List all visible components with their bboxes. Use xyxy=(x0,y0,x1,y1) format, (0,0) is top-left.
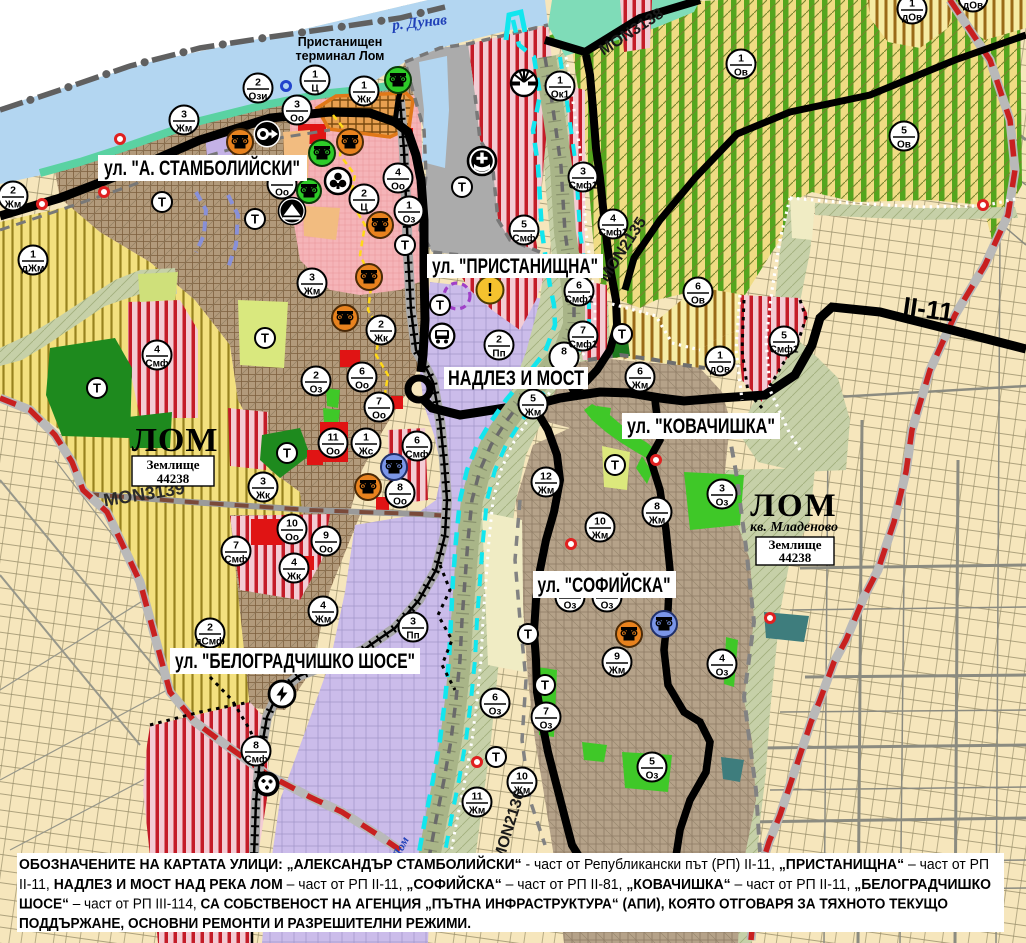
svg-text:Оо: Оо xyxy=(285,533,299,544)
svg-text:дОв: дОв xyxy=(710,365,730,376)
svg-text:2: 2 xyxy=(10,185,16,197)
svg-text:Оз: Оз xyxy=(716,668,729,679)
svg-text:44238: 44238 xyxy=(779,550,812,565)
svg-text:Ок1: Ок1 xyxy=(551,90,570,101)
svg-text:ОБОЗНАЧЕНИТЕ НА КАРТАТА УЛИЦИ:: ОБОЗНАЧЕНИТЕ НА КАРТАТА УЛИЦИ: „АЛЕКСАНД… xyxy=(19,855,989,873)
svg-text:1: 1 xyxy=(909,0,915,10)
svg-text:ул. "КОВАЧИШКА": ул. "КОВАЧИШКА" xyxy=(627,415,775,438)
svg-text:Пристанищен: Пристанищен xyxy=(298,35,383,49)
svg-text:дСмф: дСмф xyxy=(195,636,225,648)
svg-text:5: 5 xyxy=(901,125,907,137)
svg-text:Жк: Жк xyxy=(373,334,389,345)
svg-text:6: 6 xyxy=(492,692,498,704)
svg-text:ул. "СОФИЙСКА": ул. "СОФИЙСКА" xyxy=(538,573,671,597)
svg-text:Жм: Жм xyxy=(4,200,21,211)
svg-text:Ов: Ов xyxy=(897,140,911,151)
svg-text:Жм: Жм xyxy=(608,666,625,677)
svg-text:10: 10 xyxy=(516,771,528,783)
svg-text:1: 1 xyxy=(363,432,369,444)
svg-text:Т: Т xyxy=(618,327,626,342)
svg-text:11: 11 xyxy=(471,791,482,803)
svg-text:Смф1: Смф1 xyxy=(565,294,594,306)
svg-text:7: 7 xyxy=(543,706,549,718)
svg-text:дОв: дОв xyxy=(902,13,922,24)
svg-text:2: 2 xyxy=(378,319,384,331)
svg-text:Оо: Оо xyxy=(355,381,369,392)
svg-text:Оз: Оз xyxy=(403,215,416,226)
svg-text:5: 5 xyxy=(781,330,787,342)
svg-text:ПОДДЪРЖАНЕ, ОСНОВНИ РЕМОНТИ И: ПОДДЪРЖАНЕ, ОСНОВНИ РЕМОНТИ И РАЗРЕШИТЕЛ… xyxy=(19,916,471,932)
svg-text:Ц: Ц xyxy=(311,84,319,95)
svg-text:кв. Младеново: кв. Младеново xyxy=(750,520,838,535)
svg-text:8: 8 xyxy=(561,346,567,358)
svg-text:дОв: дОв xyxy=(963,1,983,12)
svg-text:Жк: Жк xyxy=(356,95,372,106)
svg-text:3: 3 xyxy=(309,272,315,284)
svg-text:2: 2 xyxy=(207,622,213,634)
svg-text:Оз: Оз xyxy=(310,385,323,396)
svg-text:6: 6 xyxy=(695,281,701,293)
svg-text:НАДЛЕЗ И МОСТ: НАДЛЕЗ И МОСТ xyxy=(448,367,584,390)
svg-text:Ов: Ов xyxy=(734,68,748,79)
svg-text:10: 10 xyxy=(286,518,298,530)
svg-text:!: ! xyxy=(487,280,493,300)
svg-text:Т: Т xyxy=(93,381,101,396)
svg-text:8: 8 xyxy=(654,501,660,513)
svg-text:6: 6 xyxy=(576,280,582,292)
svg-text:3: 3 xyxy=(719,483,725,495)
svg-text:Оз: Оз xyxy=(716,498,729,509)
svg-text:Оо: Оо xyxy=(290,114,304,125)
svg-text:10: 10 xyxy=(594,516,606,528)
svg-text:Смф: Смф xyxy=(512,233,535,245)
svg-text:Т: Т xyxy=(251,212,259,227)
svg-text:Смф1: Смф1 xyxy=(770,344,799,356)
svg-text:Т: Т xyxy=(541,678,549,693)
svg-text:Т: Т xyxy=(283,446,291,461)
svg-text:Жм: Жм xyxy=(591,531,608,542)
svg-text:6: 6 xyxy=(637,366,643,378)
svg-text:6: 6 xyxy=(359,366,365,378)
svg-text:Жм: Жм xyxy=(537,486,554,497)
svg-text:II-11, НАДЛЕЗ И МОСТ НАД РЕКА: II-11, НАДЛЕЗ И МОСТ НАД РЕКА ЛОМ – част… xyxy=(19,875,991,893)
svg-text:Ов: Ов xyxy=(691,296,705,307)
svg-text:4: 4 xyxy=(395,167,401,179)
svg-text:5: 5 xyxy=(649,756,655,768)
svg-text:Т: Т xyxy=(524,627,532,642)
svg-text:Жс: Жс xyxy=(358,447,374,458)
svg-text:11: 11 xyxy=(327,432,338,444)
svg-text:Землище: Землище xyxy=(146,457,199,472)
svg-text:Жм: Жм xyxy=(303,287,320,298)
svg-text:Т: Т xyxy=(492,750,500,765)
svg-text:Ози: Ози xyxy=(249,92,268,103)
svg-text:3: 3 xyxy=(294,99,300,111)
svg-text:Смф: Смф xyxy=(244,754,267,766)
svg-text:Смф: Смф xyxy=(145,358,168,370)
svg-text:6: 6 xyxy=(414,435,420,447)
svg-text:Оз: Оз xyxy=(646,771,659,782)
svg-text:Жм: Жм xyxy=(468,806,485,817)
svg-text:Оз: Оз xyxy=(564,601,577,612)
svg-text:8: 8 xyxy=(397,482,403,494)
svg-text:5: 5 xyxy=(521,219,527,231)
svg-text:3: 3 xyxy=(410,616,416,628)
svg-text:Т: Т xyxy=(458,180,466,195)
svg-text:9: 9 xyxy=(323,530,329,542)
svg-text:2: 2 xyxy=(496,334,502,346)
svg-text:5: 5 xyxy=(530,393,536,405)
svg-text:12: 12 xyxy=(540,471,552,483)
svg-text:3: 3 xyxy=(260,476,266,488)
svg-text:терминал Лом: терминал Лом xyxy=(296,49,385,63)
svg-text:Пп: Пп xyxy=(406,631,419,642)
svg-text:Т: Т xyxy=(611,458,619,473)
svg-text:ул. "БЕЛОГРАДЧИШКО ШОСЕ": ул. "БЕЛОГРАДЧИШКО ШОСЕ" xyxy=(175,650,415,673)
svg-text:Жм: Жм xyxy=(175,124,192,135)
svg-text:Смф: Смф xyxy=(405,449,428,461)
svg-text:дЖм: дЖм xyxy=(22,264,45,275)
svg-text:4: 4 xyxy=(610,213,616,225)
svg-text:ЛОМ: ЛОМ xyxy=(750,488,837,524)
svg-text:7: 7 xyxy=(233,540,239,552)
svg-text:Смф1: Смф1 xyxy=(569,339,598,351)
svg-text:Т: Т xyxy=(158,195,166,210)
svg-text:Оо: Оо xyxy=(275,188,289,199)
svg-text:44238: 44238 xyxy=(157,471,190,486)
svg-text:Оо: Оо xyxy=(393,497,407,508)
svg-text:1: 1 xyxy=(406,200,412,212)
svg-text:Оо: Оо xyxy=(391,182,405,193)
svg-text:Оз: Оз xyxy=(540,721,553,732)
svg-text:2: 2 xyxy=(361,188,367,200)
svg-text:Пп: Пп xyxy=(492,349,505,360)
svg-text:ул. "ПРИСТАНИЩНА": ул. "ПРИСТАНИЩНА" xyxy=(432,255,598,278)
svg-text:1: 1 xyxy=(361,80,367,92)
svg-text:8: 8 xyxy=(253,740,259,752)
svg-text:Оз: Оз xyxy=(489,707,502,718)
svg-text:Оз: Оз xyxy=(601,601,614,612)
svg-text:3: 3 xyxy=(181,109,187,121)
svg-text:Жм: Жм xyxy=(314,615,331,626)
svg-text:2: 2 xyxy=(313,370,319,382)
svg-text:Жм: Жм xyxy=(524,408,541,419)
svg-text:4: 4 xyxy=(719,653,725,665)
svg-text:ЛОМ: ЛОМ xyxy=(132,422,219,459)
svg-text:Т: Т xyxy=(436,298,444,313)
svg-text:Т: Т xyxy=(401,238,409,253)
svg-text:Смф1: Смф1 xyxy=(569,180,598,192)
svg-text:1: 1 xyxy=(30,249,36,261)
svg-text:9: 9 xyxy=(614,651,620,663)
svg-text:1: 1 xyxy=(557,75,563,87)
svg-text:Ц: Ц xyxy=(360,203,368,214)
svg-text:2: 2 xyxy=(255,77,261,89)
svg-text:4: 4 xyxy=(291,557,297,569)
svg-text:7: 7 xyxy=(580,325,586,337)
svg-text:1: 1 xyxy=(312,69,318,81)
svg-text:Оо: Оо xyxy=(319,545,333,556)
svg-text:Смф: Смф xyxy=(224,554,247,566)
svg-text:Жк: Жк xyxy=(286,572,302,583)
svg-text:Жм: Жм xyxy=(648,516,665,527)
svg-text:Жк: Жк xyxy=(255,491,271,502)
svg-text:ШОСЕ“ – част от РП III-114, СА: ШОСЕ“ – част от РП III-114, СА СОБСТВЕНО… xyxy=(19,897,948,913)
svg-text:ул. "А. СТАМБОЛИЙСКИ": ул. "А. СТАМБОЛИЙСКИ" xyxy=(104,156,300,180)
svg-text:1: 1 xyxy=(738,53,744,65)
svg-text:7: 7 xyxy=(376,396,382,408)
svg-text:4: 4 xyxy=(320,600,326,612)
svg-text:3: 3 xyxy=(580,166,586,178)
svg-text:Оо: Оо xyxy=(372,411,386,422)
svg-text:Жм: Жм xyxy=(631,381,648,392)
svg-text:4: 4 xyxy=(154,344,160,356)
svg-text:Оо: Оо xyxy=(326,447,340,458)
svg-text:1: 1 xyxy=(717,350,723,362)
svg-text:Т: Т xyxy=(261,331,269,346)
